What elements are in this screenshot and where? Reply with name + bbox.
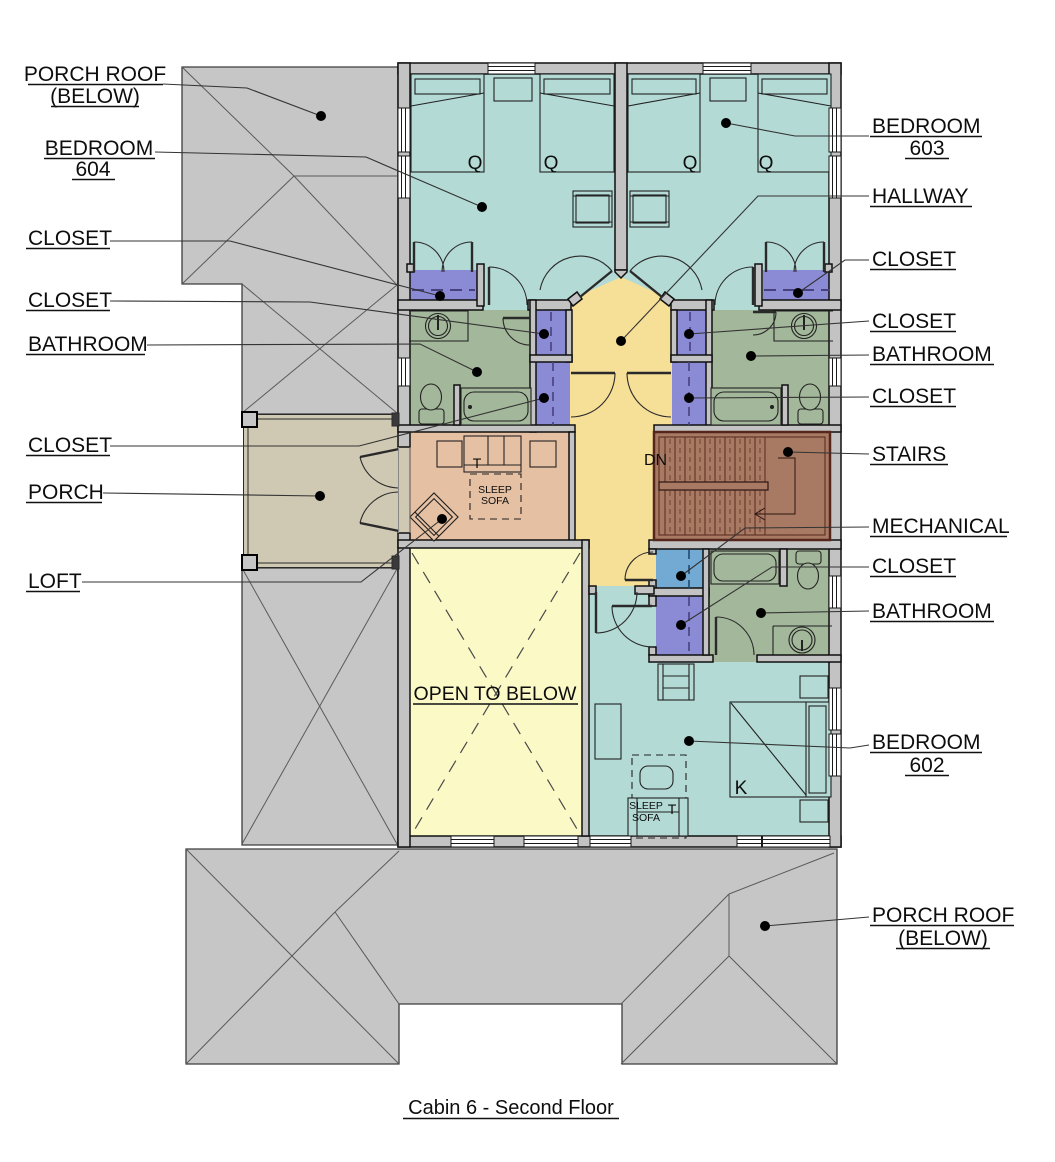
svg-text:SOFA: SOFA	[481, 495, 509, 507]
svg-text:T: T	[668, 801, 677, 817]
svg-text:(BELOW): (BELOW)	[50, 85, 140, 108]
svg-text:DN: DN	[644, 452, 667, 469]
svg-text:CLOSET: CLOSET	[872, 385, 956, 408]
svg-text:LOFT: LOFT	[28, 570, 82, 593]
svg-text:Q: Q	[468, 153, 483, 174]
svg-text:K: K	[735, 778, 748, 799]
svg-text:BEDROOM: BEDROOM	[872, 731, 981, 754]
svg-text:Q: Q	[683, 153, 698, 174]
svg-text:OPEN TO BELOW: OPEN TO BELOW	[414, 683, 577, 705]
svg-text:Cabin 6 - Second Floor: Cabin 6 - Second Floor	[408, 1097, 614, 1119]
svg-text:MECHANICAL: MECHANICAL	[872, 515, 1010, 538]
svg-text:603: 603	[909, 137, 944, 160]
svg-text:602: 602	[909, 754, 944, 777]
svg-text:SLEEP: SLEEP	[629, 800, 663, 812]
svg-text:T: T	[473, 455, 482, 471]
svg-text:CLOSET: CLOSET	[28, 434, 112, 457]
svg-text:CLOSET: CLOSET	[28, 289, 112, 312]
svg-text:CLOSET: CLOSET	[872, 555, 956, 578]
svg-text:CLOSET: CLOSET	[872, 248, 956, 271]
svg-text:BATHROOM: BATHROOM	[872, 343, 992, 366]
svg-text:PORCH ROOF: PORCH ROOF	[24, 63, 166, 86]
svg-text:BEDROOM: BEDROOM	[45, 137, 154, 160]
svg-text:BATHROOM: BATHROOM	[28, 333, 148, 356]
svg-text:STAIRS: STAIRS	[872, 443, 946, 466]
svg-text:CLOSET: CLOSET	[28, 227, 112, 250]
svg-text:(BELOW): (BELOW)	[898, 927, 988, 950]
svg-text:BEDROOM: BEDROOM	[872, 115, 981, 138]
svg-text:Q: Q	[544, 153, 559, 174]
svg-text:PORCH: PORCH	[28, 481, 104, 504]
svg-text:HALLWAY: HALLWAY	[872, 185, 968, 208]
svg-text:CLOSET: CLOSET	[872, 310, 956, 333]
svg-text:SOFA: SOFA	[632, 812, 660, 824]
svg-text:Q: Q	[759, 153, 774, 174]
svg-text:PORCH ROOF: PORCH ROOF	[872, 904, 1014, 927]
svg-text:BATHROOM: BATHROOM	[872, 600, 992, 623]
svg-text:604: 604	[75, 158, 110, 181]
